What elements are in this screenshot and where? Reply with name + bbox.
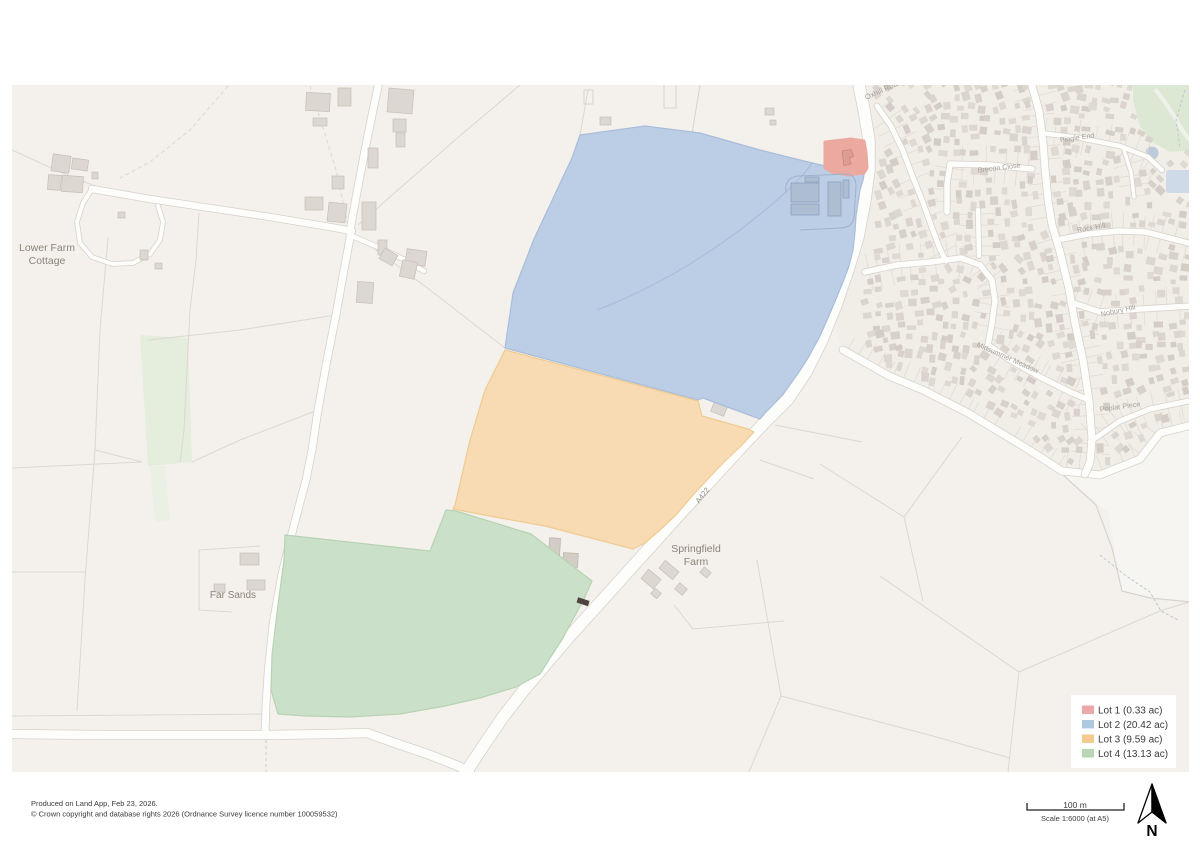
svg-text:100 m: 100 m <box>1063 800 1087 810</box>
svg-text:Lot 2 (20.42 ac): Lot 2 (20.42 ac) <box>1098 720 1168 731</box>
svg-text:Lot 4 (13.13 ac): Lot 4 (13.13 ac) <box>1098 749 1168 760</box>
svg-text:Produced on Land App, Feb 23,: Produced on Land App, Feb 23, 2026. <box>31 799 158 808</box>
svg-text:N: N <box>1146 823 1157 840</box>
svg-text:Springfield: Springfield <box>671 543 721 555</box>
svg-text:Farm: Farm <box>684 556 709 568</box>
svg-text:Lot 3 (9.59 ac): Lot 3 (9.59 ac) <box>1098 735 1162 746</box>
svg-text:Lower Farm: Lower Farm <box>19 242 75 254</box>
svg-text:Cottage: Cottage <box>29 255 66 267</box>
svg-text:Scale 1:6000 (at A5): Scale 1:6000 (at A5) <box>1041 814 1109 823</box>
svg-text:Far Sands: Far Sands <box>210 590 256 601</box>
svg-text:© Crown copyright and database: © Crown copyright and database rights 20… <box>31 810 338 819</box>
svg-text:Lot 1 (0.33 ac): Lot 1 (0.33 ac) <box>1098 706 1162 717</box>
